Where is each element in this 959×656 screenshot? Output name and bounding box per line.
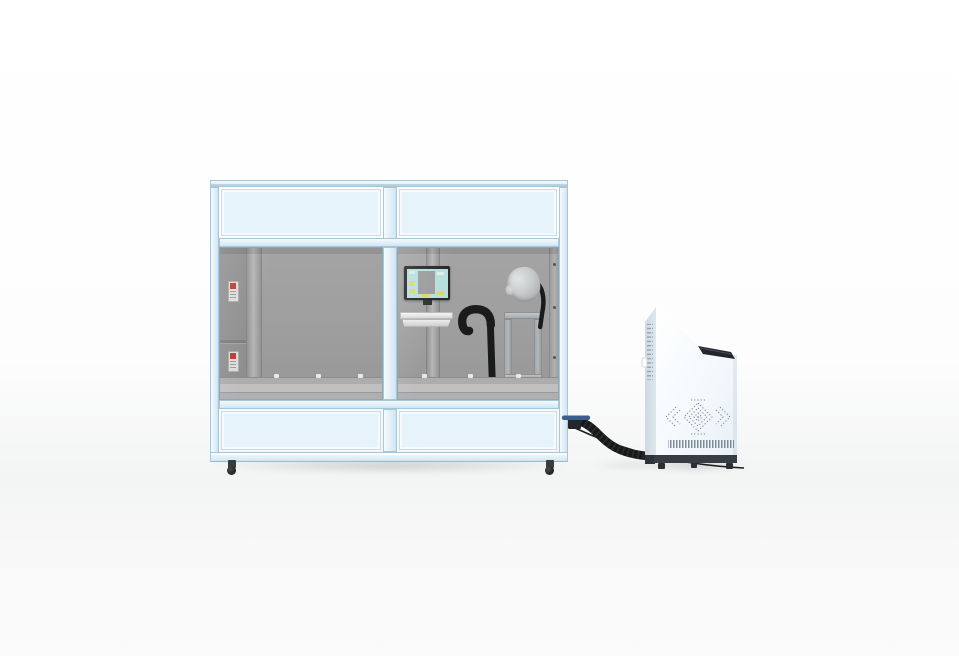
caster-wheel-disc (227, 466, 236, 475)
treadmill-handrail-bar (462, 309, 491, 331)
bolt-dot (553, 356, 556, 359)
keyboard-tray-front (402, 319, 451, 327)
floor-band-lower (220, 392, 382, 400)
side-tab (642, 358, 647, 367)
leveling-foot (468, 374, 473, 378)
screen-content-block (409, 289, 415, 293)
generator-unit (634, 302, 746, 474)
base-plinth (654, 455, 737, 463)
warning-label-red-block (230, 283, 236, 289)
top-panel-right (399, 189, 557, 236)
cabinet-foot (658, 463, 665, 469)
wall-monitor (404, 266, 450, 300)
caster-wheel (226, 460, 238, 475)
glass-top-shade (398, 248, 558, 254)
window-left (219, 247, 383, 400)
chamber-center-mullion-bottom (383, 409, 397, 452)
cabinet-foot (726, 463, 733, 469)
interior-post-left (246, 248, 262, 379)
top-panel-left (221, 189, 381, 236)
leveling-foot (358, 374, 363, 378)
leveling-foot (516, 374, 521, 378)
screen-content-block (437, 291, 444, 295)
blue-connector-rod (562, 416, 590, 421)
diamond-center-dot (697, 416, 699, 418)
interior-floor-rails (220, 377, 382, 399)
window-right (397, 247, 559, 400)
screen-content-block (409, 271, 415, 274)
monitor-mount (423, 300, 432, 305)
chamber-center-mullion-top (383, 187, 397, 245)
bolt-dot (553, 306, 556, 309)
leveling-foot (274, 374, 279, 378)
chamber-mid-rail (219, 238, 559, 247)
interior-post-right (549, 248, 559, 379)
bottom-panel-left (221, 411, 381, 450)
screen-content-block (418, 271, 435, 294)
floor-band (220, 384, 382, 392)
warning-label (228, 351, 239, 372)
chamber-base-rail (210, 452, 568, 462)
stand-top-plate (504, 312, 542, 319)
warning-label-red-block (230, 353, 236, 359)
test-chamber (210, 180, 568, 462)
keyboard-tray (400, 312, 453, 319)
floor-band (398, 384, 558, 392)
chamber-left-post (210, 187, 219, 459)
chamber-top-rail (210, 180, 568, 187)
warning-label (228, 281, 239, 302)
screen-content-block (437, 272, 444, 275)
floor-band-lower (398, 392, 558, 400)
bottom-panel-right (399, 411, 557, 450)
scene (0, 0, 959, 656)
screen-content-block (421, 294, 429, 297)
screen-content-block (409, 281, 414, 286)
glass-top-shade (220, 248, 382, 254)
plinth-side (645, 455, 655, 464)
side-vent-slots (647, 324, 653, 380)
monitor-screen (407, 269, 448, 298)
bottom-vent-grille (668, 440, 734, 448)
leveling-foot (316, 374, 321, 378)
interior-cabinet-seam (220, 340, 246, 344)
cabinet-foot (691, 463, 697, 468)
bolt-dot (553, 263, 556, 266)
leveling-foot (422, 374, 427, 378)
warning-label-text-lines (230, 291, 236, 298)
hose-fitting (568, 419, 581, 429)
chamber-bottom-rail (219, 400, 559, 409)
equipment (0, 0, 959, 656)
cabinet-front-face (656, 304, 737, 455)
chamber-center-mullion (383, 247, 397, 400)
mannequin-head (505, 265, 543, 304)
warning-label-text-lines (230, 361, 236, 368)
interior-floor-rails (398, 377, 558, 399)
